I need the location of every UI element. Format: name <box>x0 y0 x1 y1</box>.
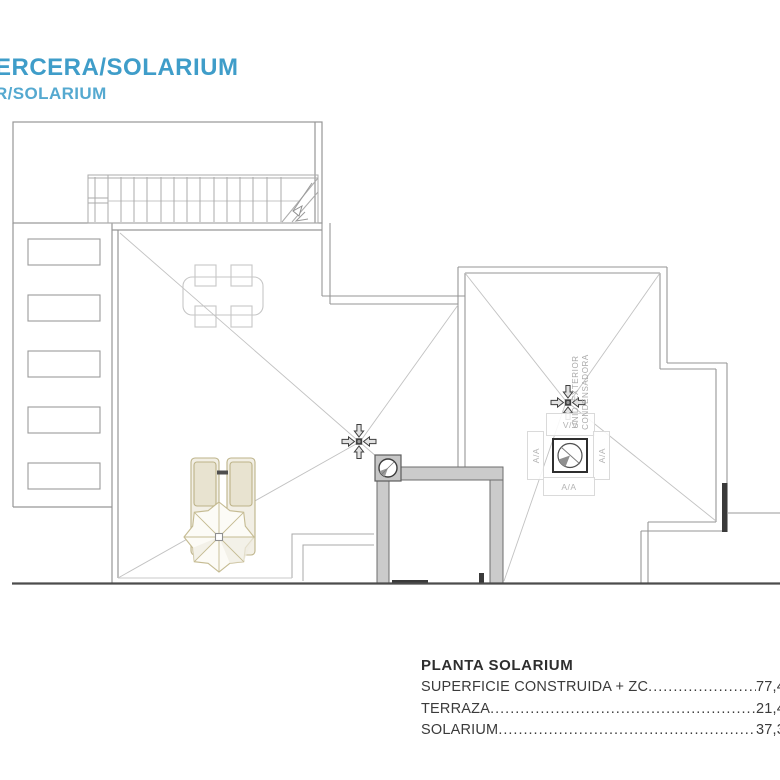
floor-plan-page: { "title": { "line1": "ERCERA/SOLARIUM",… <box>0 0 780 780</box>
page-title: ERCERA/SOLARIUM <box>0 54 239 82</box>
summary-row-label: SOLARIUM <box>421 720 498 742</box>
ac-label-right: A/A <box>593 431 610 480</box>
dot-leader: ........................................… <box>490 699 756 721</box>
ac-condenser-unit <box>553 439 587 472</box>
ac-label-bottom: A/A <box>543 477 595 496</box>
ac-label-right-text: A/A <box>597 448 607 463</box>
dot-leader: ........................................… <box>648 677 756 699</box>
summary-row-label: TERRAZA <box>421 699 490 721</box>
roof-vent-circle <box>375 455 401 481</box>
condenser-unit-label-line1: UNID. EXTERIOR <box>571 347 581 437</box>
elevator-shaft <box>377 467 503 583</box>
dining-table-set <box>183 265 263 327</box>
condenser-unit-label: UNID. EXTERIOR CONDENSADORA <box>571 347 663 437</box>
staircase <box>88 175 318 223</box>
upper-building-outline <box>13 122 322 583</box>
summary-row-value: 77,4 <box>756 677 780 699</box>
area-summary-table: PLANTA SOLARIUM SUPERFICIE CONSTRUIDA + … <box>421 657 780 742</box>
ac-label-left: A/A <box>527 431 544 480</box>
summary-row-label: SUPERFICIE CONSTRUIDA + ZC <box>421 677 648 699</box>
summary-row-value: 37,3 <box>756 720 780 742</box>
page-subtitle: R/SOLARIUM <box>0 84 107 104</box>
ac-label-left-text: A/A <box>531 448 541 463</box>
parasol-umbrella <box>184 502 254 572</box>
dot-leader: ........................................… <box>498 720 756 742</box>
condenser-unit-label-line2: CONDENSADORA <box>581 347 591 437</box>
summary-row-superficie: SUPERFICIE CONSTRUIDA + ZC..............… <box>421 677 780 699</box>
summary-row-solarium: SOLARIUM................................… <box>421 720 780 742</box>
summary-row-terraza: TERRAZA.................................… <box>421 699 780 721</box>
connector-walls <box>322 223 465 304</box>
drain-symbol-left <box>342 425 376 459</box>
wall-poche <box>392 483 728 584</box>
summary-row-value: 21,4 <box>756 699 780 721</box>
summary-title: PLANTA SOLARIUM <box>421 657 780 674</box>
storage-niches <box>28 239 100 489</box>
